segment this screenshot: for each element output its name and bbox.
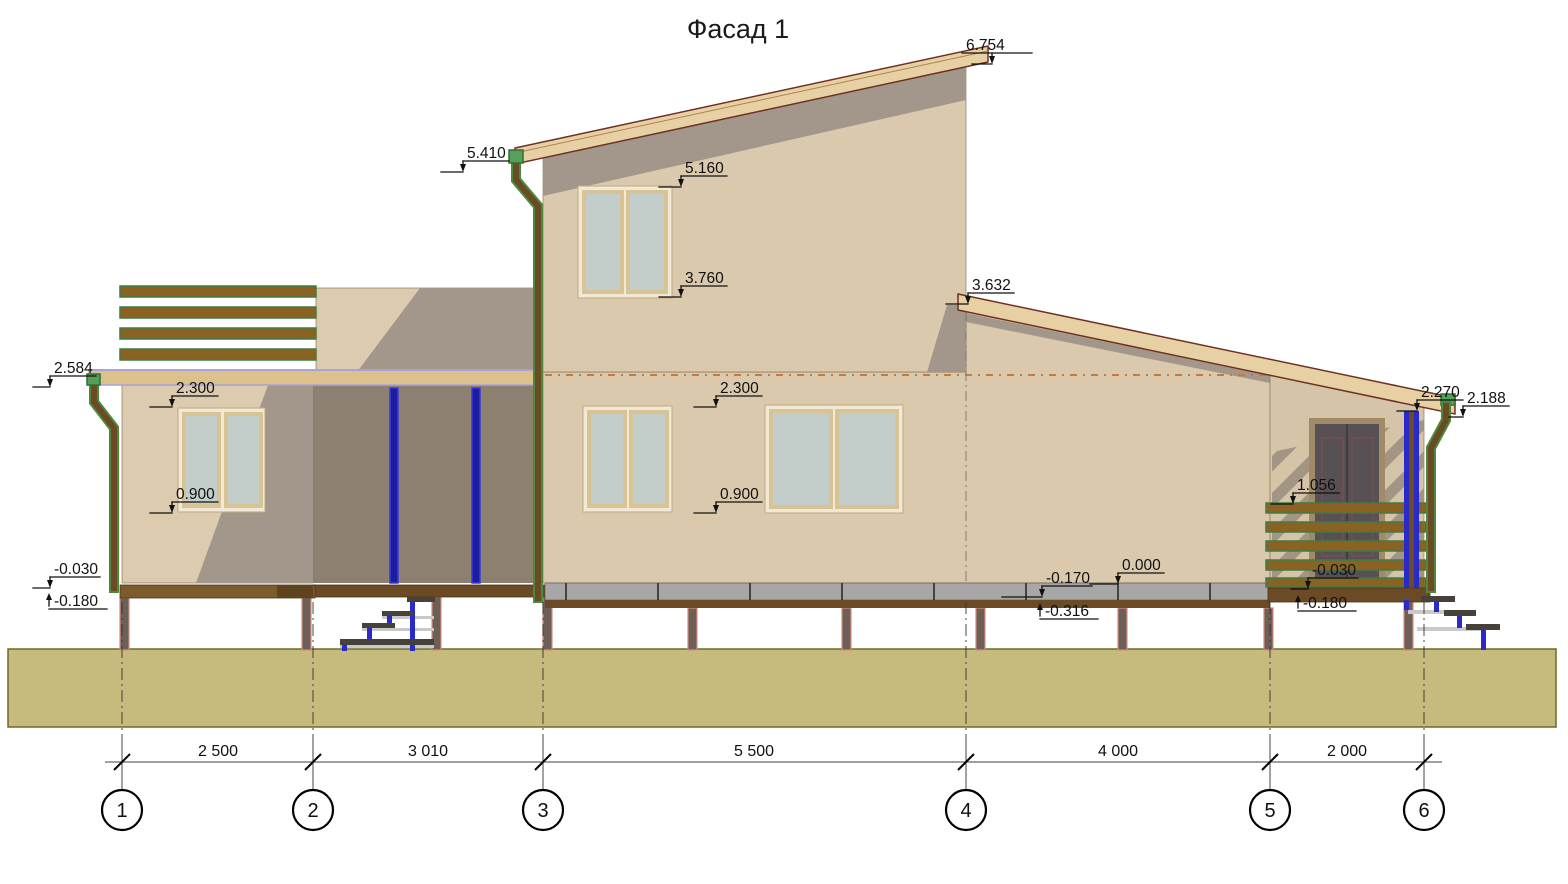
main-window-left bbox=[583, 406, 672, 512]
left-stairs bbox=[340, 597, 435, 651]
ground-band bbox=[8, 649, 1556, 727]
terrace-slab bbox=[88, 370, 545, 385]
elevation-value: 2.300 bbox=[720, 380, 759, 397]
left-porch bbox=[313, 383, 545, 597]
porch-corner-post bbox=[1404, 411, 1419, 590]
pergola-slats bbox=[120, 286, 316, 360]
elevation-value: 5.160 bbox=[685, 160, 724, 177]
porch-floor-band bbox=[1268, 588, 1430, 602]
elevation-value: 3.760 bbox=[685, 270, 724, 287]
plinth-band bbox=[545, 583, 1270, 600]
elevation-value: 2.300 bbox=[176, 380, 215, 397]
dim-5-6: 2 000 bbox=[1327, 743, 1367, 760]
elevation-value: -0.030 bbox=[1312, 562, 1356, 579]
elevation-value: 6.754 bbox=[966, 37, 1005, 54]
dim-3-4: 5 500 bbox=[734, 743, 774, 760]
facade-drawing-sheet: Фасад 1 bbox=[0, 0, 1568, 884]
dim-2-3: 3 010 bbox=[408, 743, 448, 760]
drawing-title: Фасад 1 bbox=[687, 14, 789, 44]
porch-post bbox=[472, 388, 480, 583]
left-wing-base-dark bbox=[277, 585, 313, 598]
upper-window bbox=[578, 186, 672, 298]
dimension-labels: 2 500 3 010 5 500 4 000 2 000 bbox=[198, 743, 1367, 760]
elevation-value: -0.030 bbox=[54, 561, 98, 578]
elevation-value: -0.180 bbox=[54, 593, 98, 610]
elevation-value: 3.632 bbox=[972, 277, 1011, 294]
dim-4-5: 4 000 bbox=[1098, 743, 1138, 760]
main-base-band bbox=[545, 600, 1270, 608]
marker-m0030-left: -0.030 bbox=[33, 561, 100, 588]
axis-bubble-6: 6 bbox=[1418, 800, 1429, 822]
axis-bubble-3: 3 bbox=[537, 800, 548, 822]
marker-m0180-right: -0.180 bbox=[1295, 595, 1356, 612]
axis-bubble-2: 2 bbox=[307, 800, 318, 822]
right-downspout bbox=[1431, 406, 1446, 588]
left-wing-downspout bbox=[87, 374, 114, 588]
porch-interior-shadow bbox=[313, 383, 543, 583]
elevation-value: 1.056 bbox=[1297, 477, 1336, 494]
elevation-value: 2.270 bbox=[1421, 384, 1460, 401]
elevation-value: 2.584 bbox=[54, 360, 93, 377]
porch-post bbox=[390, 388, 398, 583]
elevation-value: -0.316 bbox=[1045, 603, 1089, 620]
elevation-value: 0.900 bbox=[720, 486, 759, 503]
axis-bubble-1: 1 bbox=[116, 800, 127, 822]
porch-base bbox=[313, 585, 545, 597]
axis-bubble-4: 4 bbox=[960, 800, 971, 822]
elevation-value: -0.180 bbox=[1303, 595, 1347, 612]
axis-bubble-5: 5 bbox=[1264, 800, 1275, 822]
axis-bubbles: 1 2 3 4 5 6 bbox=[102, 790, 1444, 830]
dim-1-2: 2 500 bbox=[198, 743, 238, 760]
marker-m0180-left: -0.180 bbox=[46, 593, 107, 610]
mid-wall-section bbox=[316, 288, 543, 372]
right-stairs bbox=[1404, 596, 1500, 650]
facade-1-elevation: Фасад 1 bbox=[0, 0, 1568, 884]
elevation-value: 5.410 bbox=[467, 145, 506, 162]
elevation-value: 2.188 bbox=[1467, 390, 1506, 407]
elevation-value: -0.170 bbox=[1046, 570, 1090, 587]
left-wing bbox=[120, 385, 315, 598]
main-window-right bbox=[765, 405, 903, 513]
elevation-value: 0.900 bbox=[176, 486, 215, 503]
upper-storey bbox=[515, 46, 988, 372]
marker-5410: 5.410 bbox=[441, 145, 509, 172]
elevation-value: 0.000 bbox=[1122, 557, 1161, 574]
marker-m0316: -0.316 bbox=[1037, 603, 1098, 620]
